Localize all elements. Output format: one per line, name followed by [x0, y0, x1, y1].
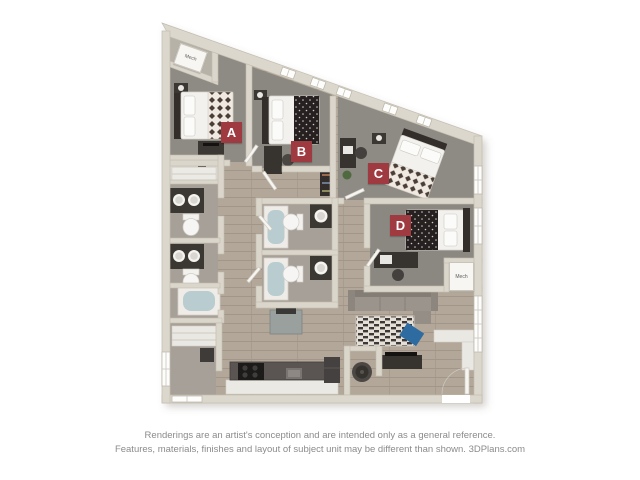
- mech-closet-tag-right: Mech: [449, 262, 474, 291]
- window-right-living: [474, 296, 482, 352]
- laptop: [380, 255, 392, 264]
- floor-plan-page: A B C D Mech Mech Renderings are an arti…: [0, 0, 640, 480]
- window-left-laundry: [162, 352, 170, 386]
- appliance: [200, 348, 214, 362]
- plant: [343, 171, 352, 180]
- pillow: [444, 214, 457, 229]
- lamp: [376, 135, 382, 141]
- shelving: [172, 326, 216, 346]
- disclaimer: Renderings are an artist's conception an…: [0, 429, 640, 457]
- entry-door-leaf: [465, 368, 469, 394]
- pillow: [184, 96, 195, 115]
- bed-headboard: [463, 208, 470, 252]
- console-table: [434, 330, 474, 342]
- bedroom-a-label: A: [221, 122, 242, 143]
- bedroom-c-label: C: [368, 163, 389, 184]
- laptop: [343, 146, 353, 154]
- toilet-bowl: [283, 214, 299, 230]
- lamp: [178, 85, 184, 91]
- tv: [385, 352, 417, 356]
- bathtub-water: [183, 291, 215, 311]
- desk-chair: [392, 269, 404, 281]
- sofa-chaise: [413, 311, 431, 324]
- toilet-bowl: [283, 266, 299, 282]
- pillow: [272, 121, 283, 140]
- floor-plan-rendering: [0, 0, 640, 480]
- bedroom-b-label: B: [291, 141, 312, 162]
- tv: [203, 143, 219, 146]
- toilet-bowl: [183, 219, 199, 236]
- sofa-seat: [355, 297, 431, 311]
- window-bottom: [172, 396, 202, 402]
- desk: [264, 146, 282, 174]
- outer-wall-bottom: [162, 395, 482, 403]
- stove: [238, 363, 264, 380]
- pillow: [272, 100, 283, 119]
- console-table: [462, 342, 474, 370]
- utility-closet: [352, 362, 372, 382]
- refrigerator: [324, 357, 340, 383]
- disclaimer-line-2: Features, materials, finishes and layout…: [0, 443, 640, 457]
- window-right-d: [474, 208, 482, 244]
- bathtub-water: [268, 262, 285, 296]
- sofa-arm: [431, 290, 438, 311]
- outer-wall-left: [162, 31, 170, 403]
- pillow: [444, 231, 457, 246]
- bedroom-d-label: D: [390, 215, 411, 236]
- bed-comforter: [294, 96, 319, 144]
- sofa-arm: [348, 290, 355, 311]
- desk-chair: [355, 147, 367, 159]
- disclaimer-line-1: Renderings are an artist's conception an…: [0, 429, 640, 443]
- bed-headboard: [174, 93, 181, 139]
- entry-door-opening: [442, 395, 470, 403]
- base-cabinets: [226, 380, 338, 394]
- pillow: [184, 117, 195, 136]
- tv-console: [380, 355, 422, 369]
- window-right-c: [474, 166, 482, 194]
- bed-headboard: [262, 97, 269, 144]
